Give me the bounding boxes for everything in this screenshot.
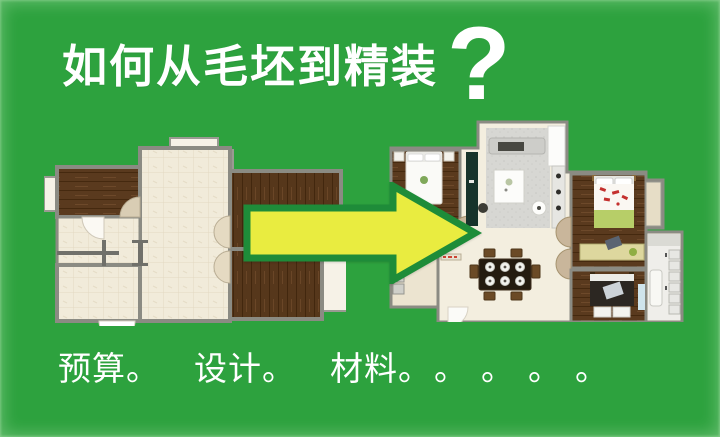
bedroom-2 (571, 174, 661, 268)
room-kitchen-bare (57, 265, 140, 321)
keyword-materials: 材料。 (330, 342, 432, 390)
question-mark: ? (447, 12, 511, 116)
keyword-budget: 预算。 (58, 342, 160, 390)
footer-keywords: 预算。 设计。 材料。 。 。 。 。 (58, 342, 622, 390)
ellipsis-dot: 。 (575, 342, 609, 390)
bedroom-3 (571, 270, 646, 322)
living-room (478, 126, 565, 228)
bathroom (648, 234, 680, 320)
transform-arrow-icon (243, 182, 483, 284)
keyword-design: 设计。 (194, 342, 296, 390)
page-title: 如何从毛坯到精装 (62, 40, 438, 94)
ellipsis-dot: 。 (434, 342, 468, 390)
poster: 如何从毛坯到精装 ? (0, 0, 720, 437)
ellipsis-dot: 。 (528, 342, 562, 390)
ellipsis-dot: 。 (481, 342, 515, 390)
